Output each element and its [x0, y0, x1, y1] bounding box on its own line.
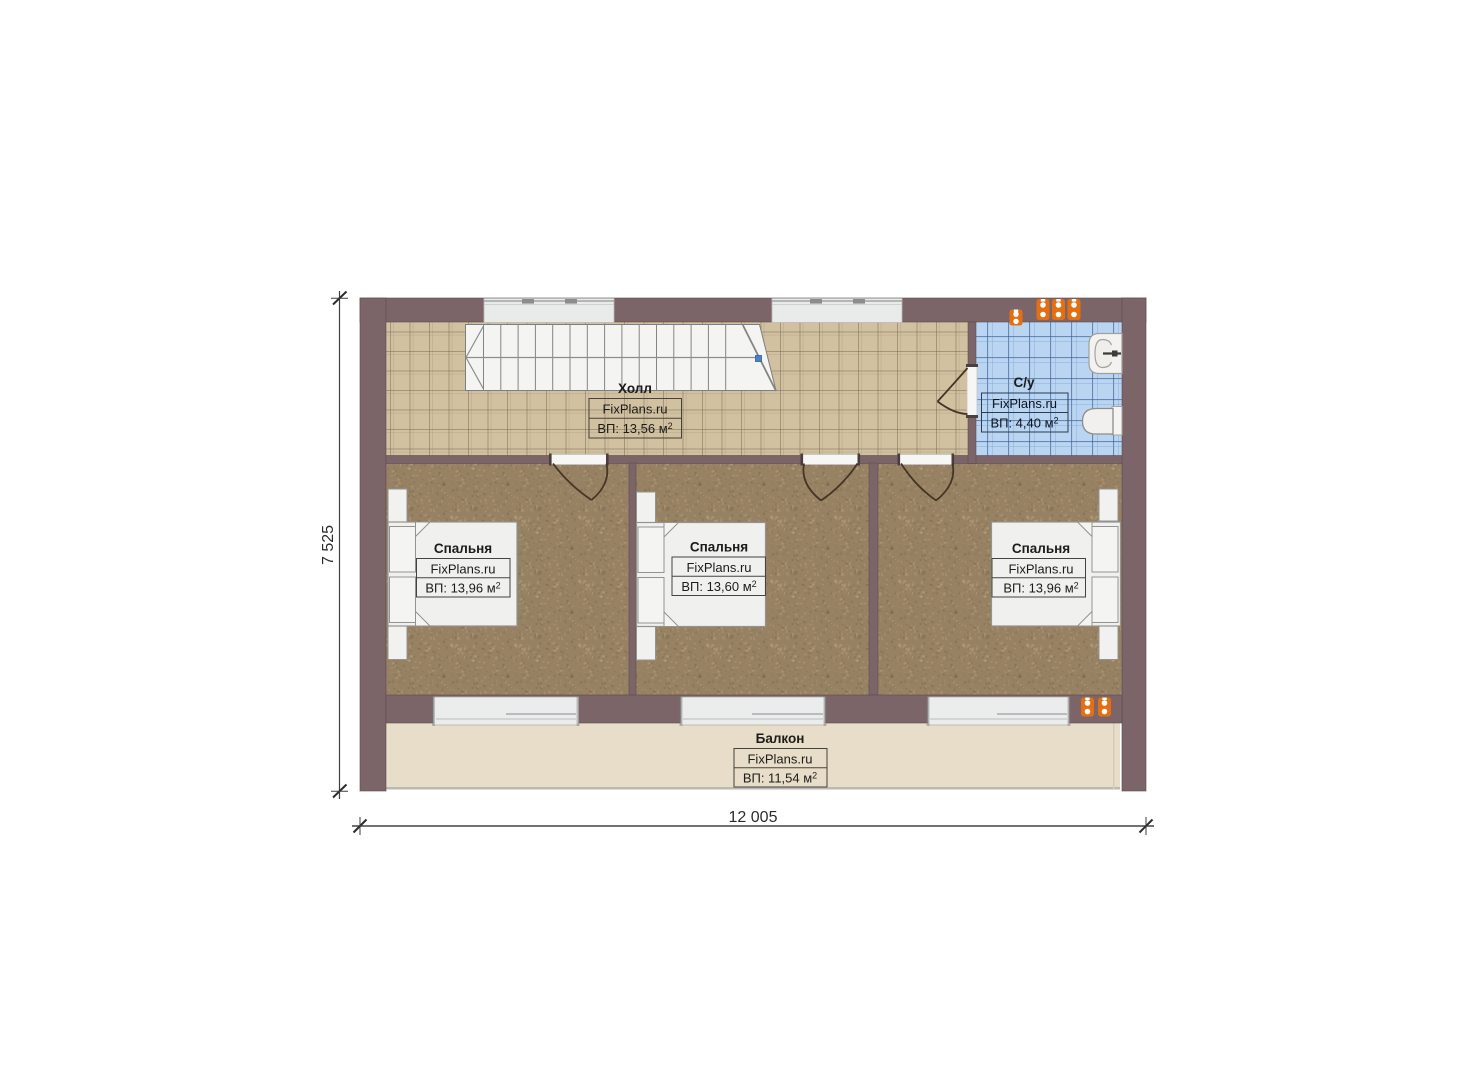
- svg-text:ВП: 11,54 м2: ВП: 11,54 м2: [743, 771, 817, 786]
- svg-text:FixPlans.ru: FixPlans.ru: [602, 402, 667, 417]
- svg-text:12 005: 12 005: [729, 809, 778, 826]
- svg-text:FixPlans.ru: FixPlans.ru: [686, 560, 751, 575]
- svg-text:FixPlans.ru: FixPlans.ru: [747, 752, 812, 767]
- svg-text:FixPlans.ru: FixPlans.ru: [992, 396, 1057, 411]
- svg-text:Спальня: Спальня: [434, 541, 492, 556]
- svg-text:FixPlans.ru: FixPlans.ru: [430, 562, 495, 577]
- svg-text:FixPlans.ru: FixPlans.ru: [1008, 562, 1073, 577]
- svg-text:7 525: 7 525: [320, 525, 337, 565]
- svg-text:ВП: 13,60 м2: ВП: 13,60 м2: [681, 579, 756, 594]
- svg-text:Холл: Холл: [618, 381, 652, 396]
- svg-text:Балкон: Балкон: [756, 731, 805, 746]
- svg-text:Спальня: Спальня: [690, 540, 748, 555]
- svg-text:ВП: 4,40 м2: ВП: 4,40 м2: [990, 416, 1058, 431]
- svg-text:Спальня: Спальня: [1012, 541, 1070, 556]
- svg-text:ВП: 13,56 м2: ВП: 13,56 м2: [597, 421, 672, 436]
- svg-text:ВП: 13,96 м2: ВП: 13,96 м2: [425, 581, 500, 596]
- svg-text:С/у: С/у: [1013, 375, 1035, 390]
- svg-text:ВП: 13,96 м2: ВП: 13,96 м2: [1003, 581, 1078, 596]
